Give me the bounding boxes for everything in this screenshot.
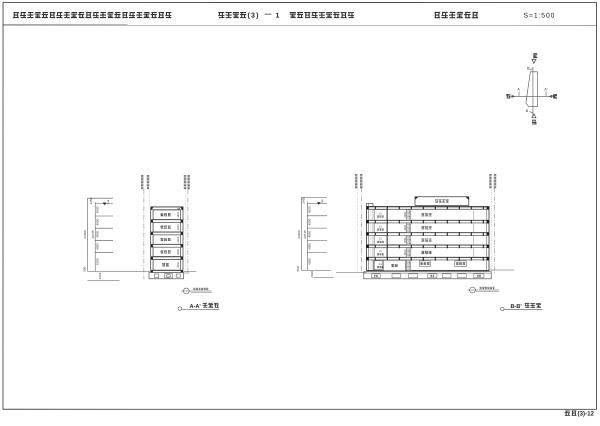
svg-text:135: 135 [107,199,110,204]
svg-text:23200: 23200 [297,230,301,239]
svg-text:1: 1 [276,13,280,20]
svg-text:4000: 4000 [95,243,99,250]
svg-text:23200: 23200 [83,230,87,239]
svg-text:EV: EV [379,263,383,266]
svg-text:2600: 2600 [177,248,180,254]
svg-text:2600: 2600 [404,237,407,243]
svg-text:4000: 4000 [308,243,312,250]
svg-text:EV: EV [379,212,383,215]
svg-text:2600: 2600 [177,224,180,230]
svg-text:500: 500 [83,266,87,271]
svg-text:(3)-12: (3)-12 [577,411,594,418]
svg-text:A': A' [544,88,547,92]
svg-text:S=1:500: S=1:500 [524,12,556,19]
svg-text:2450: 2450 [301,197,305,204]
svg-text:2600: 2600 [177,261,180,267]
svg-text:4000: 4000 [308,218,312,225]
svg-text:EV: EV [379,225,383,228]
svg-text:4000: 4000 [95,206,99,213]
svg-text:2620: 2620 [98,272,102,279]
svg-text:EV: EV [379,250,383,253]
svg-text:4000: 4000 [308,206,312,213]
svg-text:2620: 2620 [310,271,314,278]
svg-text:B-B': B-B' [510,304,522,310]
svg-text:A-A': A-A' [189,304,201,310]
svg-text:2600: 2600 [404,211,407,217]
svg-text:500: 500 [296,266,300,271]
svg-text:4000: 4000 [308,231,312,238]
svg-text:4300: 4300 [308,258,312,265]
svg-text:20735: 20735 [91,230,95,239]
svg-text:(3): (3) [248,12,260,20]
svg-text:4000: 4000 [95,231,99,238]
svg-text:EV: EV [379,238,383,241]
svg-text:—: — [265,11,272,18]
svg-text:135: 135 [321,199,324,204]
svg-text:4300: 4300 [95,258,99,265]
svg-text:2600: 2600 [177,236,180,242]
svg-text:2600: 2600 [404,224,407,230]
svg-text:2600: 2600 [177,211,180,217]
svg-text:2600: 2600 [404,249,407,255]
svg-text:4000: 4000 [95,218,99,225]
svg-text:2450: 2450 [89,197,93,204]
svg-text:20735: 20735 [303,230,307,239]
